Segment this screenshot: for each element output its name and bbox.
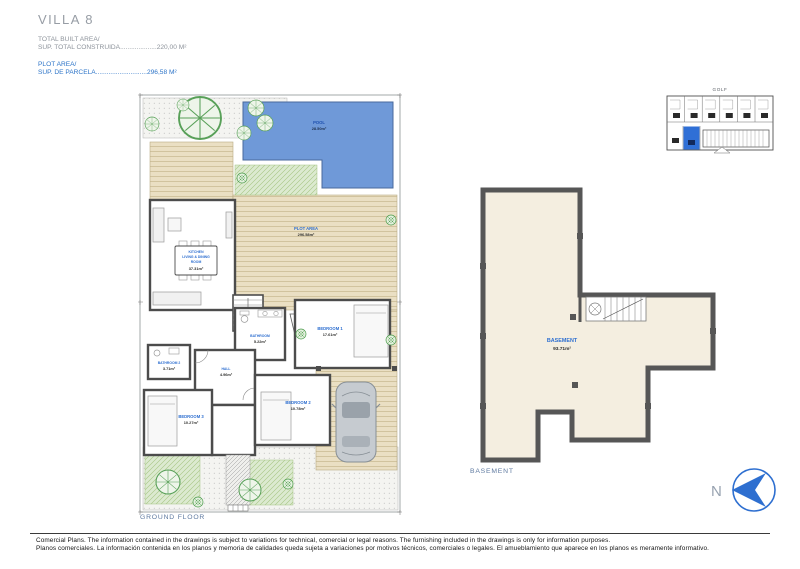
plot-area-deck-label: PLOT AREA bbox=[294, 226, 318, 231]
plan-sheet: VILLA 8 TOTAL BUILT AREA/ SUP. TOTAL CON… bbox=[0, 0, 800, 569]
ground-floor-caption: GROUND FLOOR bbox=[140, 514, 205, 521]
bathroom1-area: 5.22m² bbox=[254, 339, 267, 344]
highlighted-footprint bbox=[688, 140, 695, 145]
room-bathroom2: BATHROOM 2 3.71m² bbox=[148, 345, 190, 379]
golf-label: GOLF bbox=[713, 87, 728, 92]
kitchen-label-1: KITCHEN bbox=[188, 250, 204, 254]
coffee-table bbox=[168, 218, 181, 231]
bedroom3-area: 10.27m² bbox=[184, 420, 199, 425]
footer-divider bbox=[30, 533, 770, 534]
sink-unit bbox=[169, 348, 179, 354]
lawn-1 bbox=[235, 165, 317, 195]
dining-chair bbox=[203, 275, 211, 280]
sofa bbox=[153, 208, 164, 242]
tree-icon bbox=[239, 479, 261, 501]
kitchen-label-2: LIVING & DINING bbox=[182, 255, 210, 259]
bedroom2-label: BEDROOM 2 bbox=[285, 400, 311, 405]
basement-plan: BASEMENT 93.71m² bbox=[455, 175, 721, 475]
built-area-line: SUP. TOTAL CONSTRUIDA...................… bbox=[38, 44, 186, 52]
bedroom3-label: BEDROOM 3 bbox=[178, 414, 204, 419]
toilet-icon bbox=[241, 316, 248, 323]
built-area-label-en: TOTAL BUILT AREA/ bbox=[38, 36, 186, 44]
highlighted-plot bbox=[684, 127, 700, 150]
shrub-icon bbox=[386, 215, 396, 225]
tree-icon bbox=[177, 99, 189, 111]
dining-chair bbox=[191, 241, 199, 246]
hall-area: 4.96m² bbox=[220, 372, 233, 377]
shrub-icon bbox=[296, 329, 306, 339]
entry-vestibule bbox=[212, 405, 255, 455]
pool-area-label: 28.50m² bbox=[312, 126, 327, 131]
basement-area: 93.71m² bbox=[553, 346, 571, 352]
page-title: VILLA 8 bbox=[38, 12, 186, 27]
room-living: KITCHEN LIVING & DINING ROOM 37.31m² bbox=[150, 200, 235, 310]
built-area-block: TOTAL BUILT AREA/ SUP. TOTAL CONSTRUIDA.… bbox=[38, 36, 186, 52]
kitchen-area: 37.31m² bbox=[189, 266, 204, 271]
basement-stairs-icon bbox=[586, 297, 646, 321]
shrub-icon bbox=[193, 497, 203, 507]
carport-post bbox=[316, 366, 321, 371]
site-plan-map: GOLF bbox=[664, 82, 776, 156]
tree-icon bbox=[248, 100, 264, 116]
dining-chair bbox=[203, 241, 211, 246]
tree-icon bbox=[145, 117, 159, 131]
plot-area-block: PLOT AREA/ SUP. DE PARCELA..............… bbox=[38, 61, 186, 77]
pool-label: POOL bbox=[313, 120, 325, 125]
toilet-icon bbox=[154, 350, 160, 356]
plot-area-value: 296,58 M² bbox=[147, 69, 177, 76]
tree-icon bbox=[156, 470, 180, 494]
bedroom1-area: 17.61m² bbox=[323, 332, 338, 337]
bathroom1-label: BATHROOM bbox=[250, 334, 270, 338]
kitchen-counter bbox=[153, 292, 201, 305]
room-bedroom1: BEDROOM 1 17.61m² bbox=[295, 300, 390, 368]
plot-area-line: SUP. DE PARCELA.........................… bbox=[38, 69, 186, 77]
built-area-value: 220,00 M² bbox=[157, 44, 187, 51]
bedroom2-area: 10.78m² bbox=[291, 406, 306, 411]
plot-area-deck-value: 296.58m² bbox=[298, 232, 315, 237]
bathroom2-label: BATHROOM 2 bbox=[158, 361, 181, 365]
disclaimer-es: Planos comerciales. La información conte… bbox=[36, 545, 776, 553]
north-letter: N bbox=[711, 483, 722, 500]
shrub-icon bbox=[237, 173, 247, 183]
header: VILLA 8 TOTAL BUILT AREA/ SUP. TOTAL CON… bbox=[38, 12, 186, 77]
plot-area-label-en: PLOT AREA/ bbox=[38, 61, 186, 69]
toilet-tank bbox=[240, 311, 249, 315]
basement-label: BASEMENT bbox=[547, 338, 578, 344]
dining-chair bbox=[179, 275, 187, 280]
tree-icon bbox=[237, 126, 251, 140]
bed-icon bbox=[148, 396, 177, 446]
bathroom2-area: 3.71m² bbox=[163, 366, 176, 371]
tree-icon bbox=[257, 115, 273, 131]
dining-chair bbox=[191, 275, 199, 280]
hall-label: HALL bbox=[221, 367, 230, 371]
shrub-icon bbox=[283, 479, 293, 489]
dining-chairs-top bbox=[179, 241, 187, 246]
room-bedroom3: BEDROOM 3 10.27m² bbox=[144, 390, 212, 455]
tv-bench bbox=[226, 212, 232, 238]
site-footprint bbox=[672, 138, 679, 143]
basement-caption: BASEMENT bbox=[470, 468, 514, 475]
bedroom1-label: BEDROOM 1 bbox=[317, 326, 343, 331]
footer-disclaimer: Comercial Plans. The information contain… bbox=[36, 537, 776, 553]
ground-floor-plan: POOL 28.50m² PLOT AREA 296.58m² KITCHEN … bbox=[138, 92, 404, 518]
kitchen-label-3: ROOM bbox=[191, 260, 202, 264]
disclaimer-en: Comercial Plans. The information contain… bbox=[36, 537, 776, 545]
room-bedroom2: BEDROOM 2 10.78m² bbox=[255, 375, 330, 445]
gate-steps bbox=[228, 505, 248, 511]
car-icon bbox=[332, 382, 380, 462]
main-deck bbox=[233, 195, 397, 310]
carport-post bbox=[392, 366, 397, 371]
north-arrow: N bbox=[703, 458, 789, 522]
terrace-deck bbox=[150, 142, 233, 200]
shrub-icon bbox=[386, 335, 396, 345]
basement-outline bbox=[483, 190, 713, 460]
